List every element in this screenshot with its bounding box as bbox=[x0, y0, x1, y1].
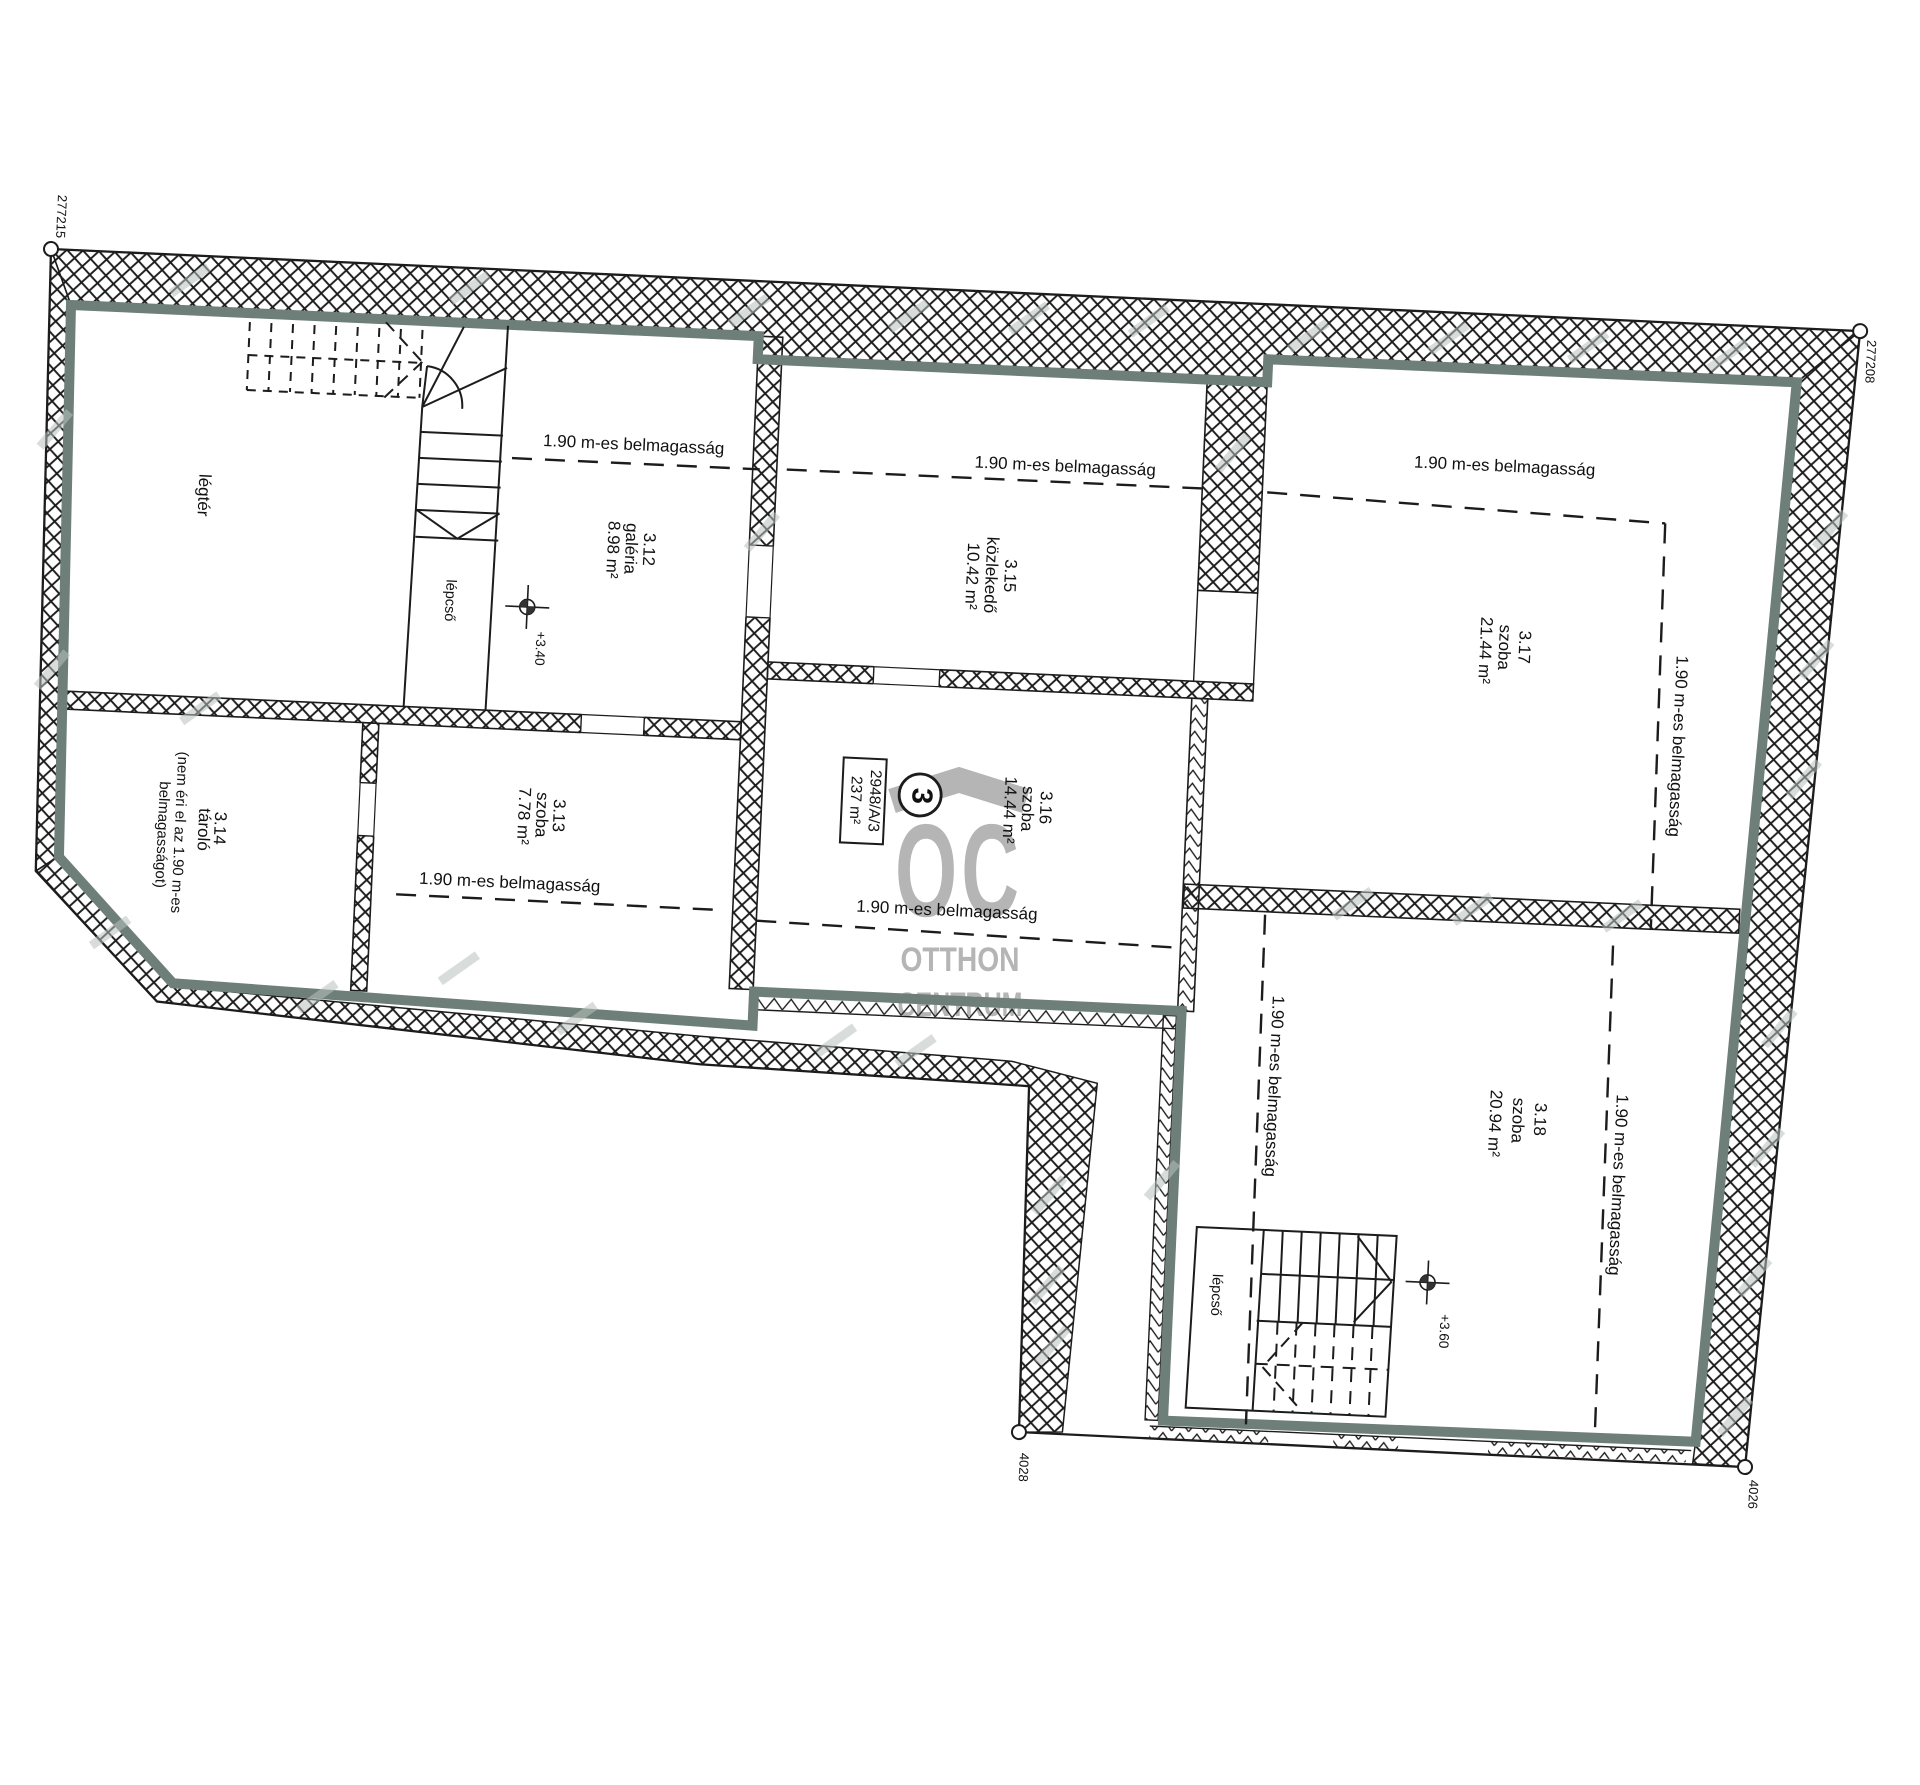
svg-text:4026: 4026 bbox=[1745, 1480, 1761, 1510]
svg-text:OTTHON: OTTHON bbox=[901, 941, 1020, 979]
svg-text:3.18: 3.18 bbox=[1530, 1102, 1550, 1136]
svg-text:277215: 277215 bbox=[53, 194, 70, 238]
svg-text:14.44 m²: 14.44 m² bbox=[999, 776, 1021, 844]
svg-text:3: 3 bbox=[905, 787, 938, 805]
svg-text:7.78 m²: 7.78 m² bbox=[513, 787, 535, 846]
svg-text:+3.40: +3.40 bbox=[532, 631, 549, 666]
svg-text:10.42 m²: 10.42 m² bbox=[961, 542, 983, 610]
svg-text:4028: 4028 bbox=[1016, 1453, 1032, 1483]
svg-text:szoba: szoba bbox=[1507, 1097, 1528, 1144]
svg-text:légtér: légtér bbox=[194, 474, 215, 518]
svg-text:3.15: 3.15 bbox=[1000, 559, 1020, 593]
svg-text:237 m²: 237 m² bbox=[846, 776, 865, 825]
svg-text:20.94 m²: 20.94 m² bbox=[1484, 1089, 1506, 1157]
svg-text:lépcső: lépcső bbox=[1207, 1274, 1225, 1317]
svg-text:szoba: szoba bbox=[1494, 624, 1515, 671]
svg-text:tároló: tároló bbox=[193, 808, 214, 851]
svg-text:lépcső: lépcső bbox=[441, 579, 459, 622]
svg-text:21.44 m²: 21.44 m² bbox=[1474, 616, 1496, 684]
svg-text:2948/A/3: 2948/A/3 bbox=[864, 769, 884, 832]
svg-text:277208: 277208 bbox=[1862, 340, 1879, 384]
svg-text:3.17: 3.17 bbox=[1514, 630, 1534, 664]
svg-text:+3.60: +3.60 bbox=[1436, 1314, 1453, 1349]
svg-text:8.98 m²: 8.98 m² bbox=[602, 521, 624, 580]
